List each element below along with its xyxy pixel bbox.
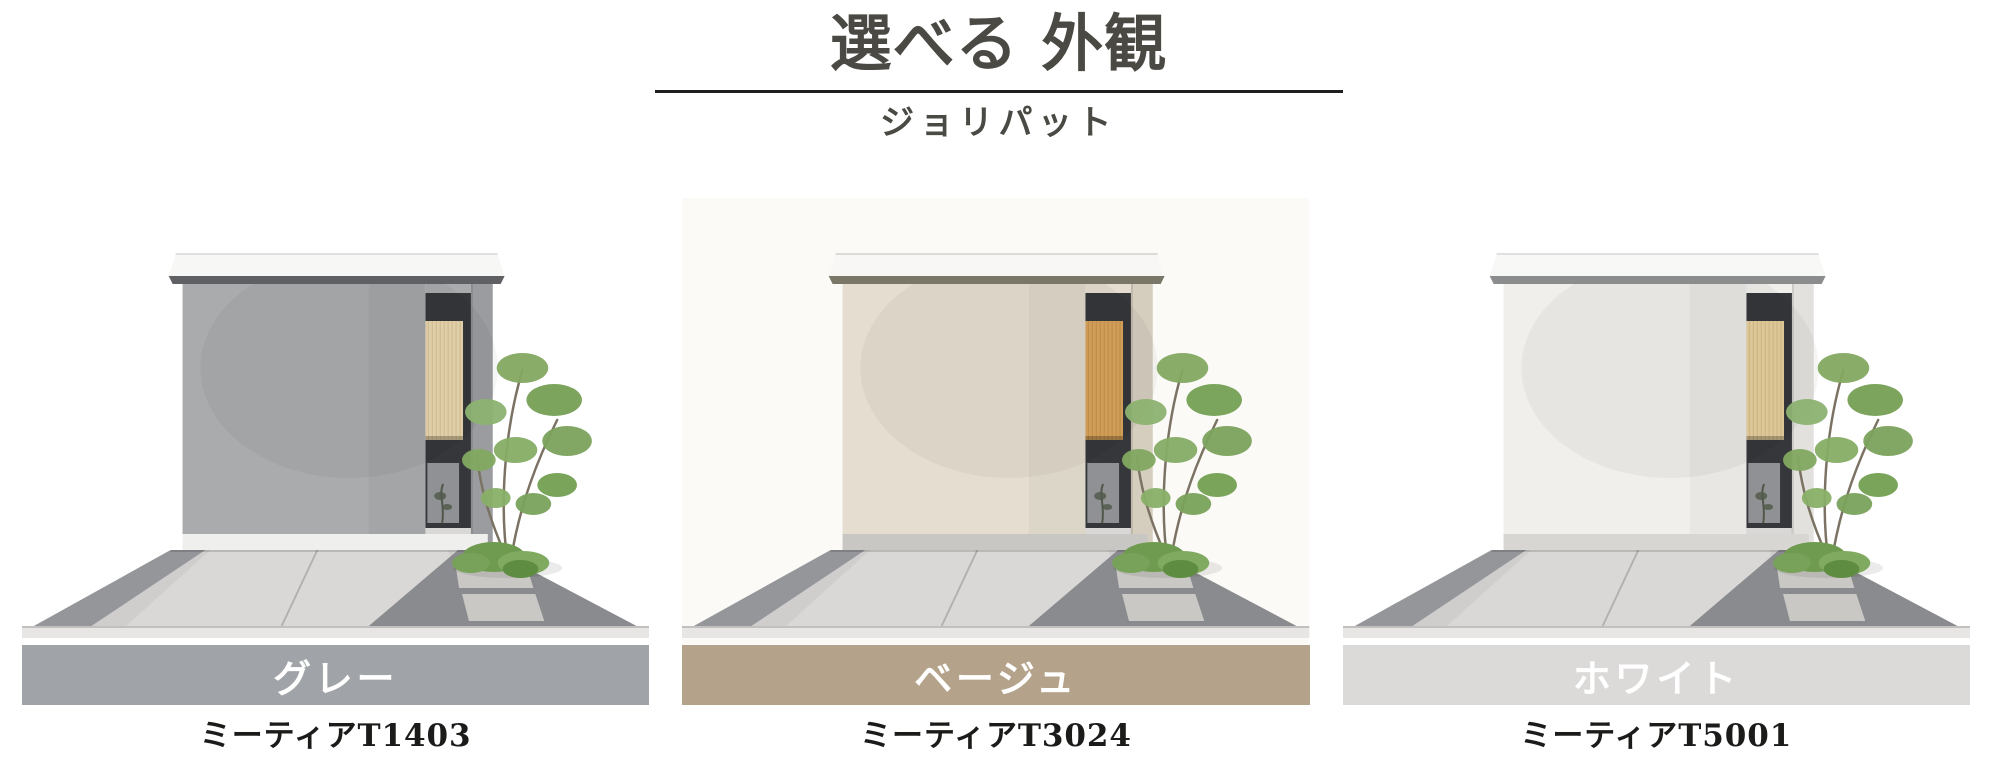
roof-fascia (169, 255, 505, 276)
roof-top-line (1496, 253, 1818, 255)
house-rendering (22, 198, 649, 645)
roof-top-line (836, 253, 1158, 255)
page-subtitle: ジョリパット (0, 103, 1997, 144)
house-photo-beige (682, 198, 1309, 645)
color-name-label: ホワイト (1573, 648, 1740, 703)
entry-plant-leaves (434, 492, 446, 500)
curb-line (1343, 626, 1970, 628)
color-name-label: ベージュ (914, 648, 1078, 703)
color-name-label: グレー (273, 648, 398, 703)
product-code-label: ミーティアT3024 (682, 710, 1309, 755)
foreground-strip (1343, 638, 1970, 645)
exterior-option-card-white: ホワイト ミーティアT5001 (1343, 198, 1970, 755)
exterior-options-row: グレー ミーティアT1403 (0, 198, 1997, 755)
entry-plant-leaves (1755, 492, 1767, 500)
roof-top-line (176, 253, 498, 255)
base-shadow-line (831, 550, 1153, 552)
page-title: 選べる 外観 (0, 8, 1997, 79)
stepping-stone (1122, 594, 1204, 621)
stepping-stone (1783, 594, 1865, 621)
wall-shading-right (369, 277, 425, 534)
wall-shading (200, 258, 497, 478)
exterior-option-card-gray: グレー ミーティアT1403 (22, 198, 649, 755)
roof-fascia (829, 255, 1165, 276)
roof-fascia (1489, 255, 1825, 276)
entry-plant-leaves (442, 504, 452, 510)
exterior-option-card-beige: ベージュ ミーティアT3024 (682, 198, 1309, 755)
roof-shadow-band (169, 276, 505, 284)
product-code-label: ミーティアT1403 (22, 710, 649, 755)
color-swatch-bar: ベージュ (682, 645, 1309, 705)
base-shadow-line (1491, 550, 1813, 552)
house-photo-white (1343, 198, 1970, 645)
foundation-base-strip (183, 534, 488, 550)
wall-shading (1521, 258, 1818, 478)
page-header: 選べる 外観 ジョリパット (0, 0, 1997, 144)
house-rendering (1343, 198, 1970, 645)
foreground-strip (22, 638, 649, 645)
roof-shadow-band (829, 276, 1165, 284)
entry-plant-leaves (1095, 492, 1107, 500)
foreground-strip (682, 638, 1309, 645)
color-swatch-bar: ホワイト (1343, 645, 1970, 705)
wall-shading-right (1029, 277, 1085, 534)
curb-line (22, 626, 649, 628)
wall-shading (861, 258, 1158, 478)
foundation-base-strip (843, 534, 1148, 550)
entry-plant-leaves (1763, 504, 1773, 510)
product-code-label: ミーティアT5001 (1343, 710, 1970, 755)
title-divider (655, 90, 1343, 93)
roof-shadow-band (1489, 276, 1825, 284)
curb-line (682, 626, 1309, 628)
entry-plant-leaves (1103, 504, 1113, 510)
foundation-base-strip (1503, 534, 1808, 550)
house-photo-gray (22, 198, 649, 645)
wall-shading-right (1690, 277, 1746, 534)
color-swatch-bar: グレー (22, 645, 649, 705)
base-shadow-line (171, 550, 493, 552)
stepping-stone (462, 594, 544, 621)
house-rendering (682, 198, 1309, 645)
